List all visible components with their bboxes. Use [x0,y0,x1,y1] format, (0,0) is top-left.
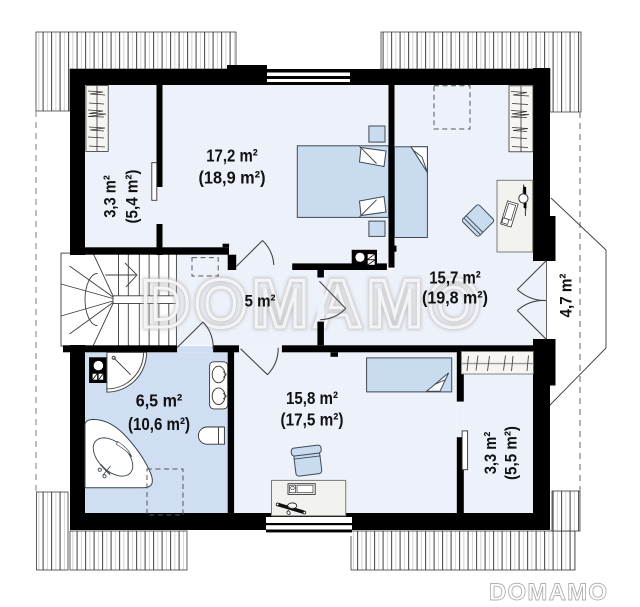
svg-text:(19,8 m²): (19,8 m²) [422,288,488,308]
svg-text:15,8 m²: 15,8 m² [286,388,338,408]
svg-text:3,3 m²: 3,3 m² [102,175,120,218]
svg-text:4,7 m²: 4,7 m² [558,273,576,317]
svg-text:DOMAMO: DOMAMO [489,579,608,606]
svg-text:(10,6 m²): (10,6 m²) [128,414,190,434]
svg-text:(17,5 m²): (17,5 m²) [281,410,344,430]
svg-text:(18,9 m²): (18,9 m²) [199,168,266,188]
svg-text:(5,5 m²): (5,5 m²) [503,426,521,480]
svg-text:(5,4 m²): (5,4 m²) [124,170,142,224]
svg-text:6,5 m²: 6,5 m² [136,391,183,411]
svg-text:17,2 m²: 17,2 m² [206,146,258,166]
svg-text:5 m²: 5 m² [245,293,276,311]
svg-text:3,3 m²: 3,3 m² [482,431,500,474]
svg-text:15,7 m²: 15,7 m² [429,268,481,288]
